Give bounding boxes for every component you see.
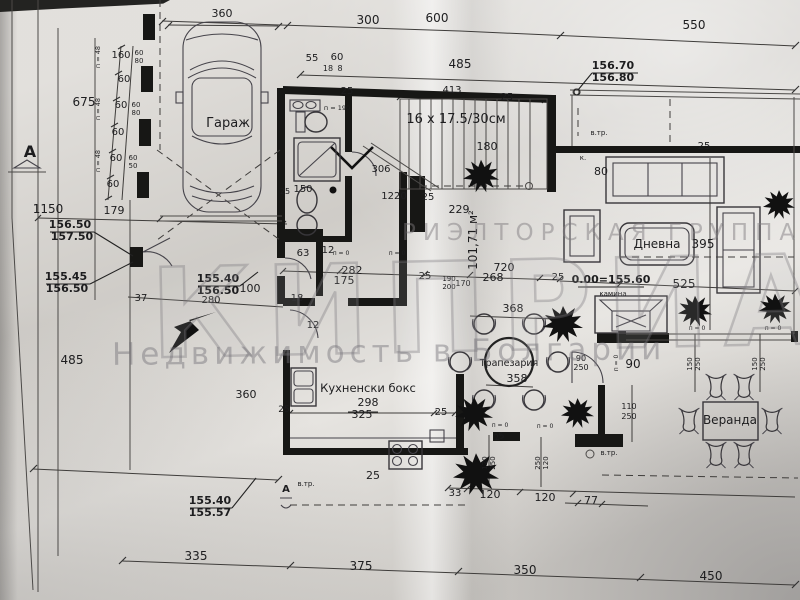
dim-label: 325 — [352, 408, 373, 421]
room-label-living: Дневна — [634, 237, 681, 251]
room-label-dining: Трапезария — [479, 358, 539, 369]
dim-label: 33 — [449, 488, 462, 499]
dim-label: в.тр. — [600, 449, 617, 457]
dim-label: п = 0 — [389, 250, 406, 257]
dim-label: 300 — [357, 13, 380, 27]
dim-label: 25 — [278, 405, 289, 415]
dim-label: 25 — [366, 469, 380, 482]
north-arrow — [169, 312, 216, 353]
dim-label: 25 — [501, 92, 514, 103]
dim-label: п = 0 — [537, 423, 554, 430]
car — [157, 22, 282, 240]
dim-label: 250 — [621, 412, 636, 421]
dim-label: 60 — [132, 101, 141, 109]
floor-plan-drawing: 3603006005504855560188160606060606060806… — [0, 0, 800, 600]
dim-label: 170 — [455, 279, 470, 288]
dim-label: 525 — [673, 277, 696, 291]
dim-label: 306 — [371, 164, 390, 175]
dim-label: 150 — [751, 357, 759, 370]
dim-label: 120 — [535, 491, 556, 504]
dim-label: 350 — [514, 563, 537, 577]
dim-label: 120 — [481, 456, 489, 469]
dim-label: 37 — [135, 293, 148, 304]
dim-label: 1220 — [381, 191, 406, 202]
room-label-kitchen: Кухненски бокс — [320, 381, 416, 395]
dim-label: 25 — [552, 272, 565, 283]
elevation-mark: 155.57 — [189, 506, 231, 519]
dim-label: 18 — [323, 64, 333, 73]
plants — [453, 160, 795, 495]
dim-label: 150 — [686, 357, 694, 370]
dim-label: 25 — [280, 187, 290, 196]
dim-label: 600 — [426, 11, 449, 25]
toilet-tank — [296, 112, 305, 132]
elevation-mark: 156.80 — [592, 71, 635, 84]
elevation-mark: 157.50 — [51, 230, 94, 243]
dim-label: 77 — [584, 494, 598, 507]
dim-label: 60 — [115, 100, 128, 111]
dim-label: 80 — [594, 165, 608, 178]
dim-label: 120 — [480, 488, 501, 501]
dim-label: 360 — [212, 7, 233, 20]
dim-label: 60 — [107, 179, 120, 190]
floor-area-label: 101,71 м² — [466, 210, 480, 270]
level-note: 0.00=155.60 — [572, 273, 651, 286]
dim-label: 90 — [625, 357, 640, 371]
dim-label: п = 0 — [613, 355, 620, 372]
dim-label: 413 — [442, 85, 461, 96]
dim-label: 1150 — [33, 202, 64, 216]
dim-label: 179 — [104, 204, 125, 217]
floor-plan-photo: 3603006005504855560188160606060606060806… — [0, 0, 800, 600]
dim-label: п = 0 — [492, 422, 509, 429]
fireplace-label: камина — [599, 290, 626, 298]
dim-label: п = 190 — [324, 104, 350, 112]
dim-label: 55 — [306, 53, 319, 64]
dim-label: 25 — [341, 86, 354, 97]
dim-label: в.тр. — [297, 480, 314, 488]
dim-label: 395 — [692, 237, 715, 251]
dim-label: 368 — [503, 302, 524, 315]
bathroom-fixtures — [290, 100, 340, 235]
dim-label: 190 — [442, 275, 455, 283]
dim-label: 90 — [576, 354, 586, 363]
dim-label: 60 — [331, 52, 344, 63]
dim-label: 63 — [297, 248, 310, 259]
dim-label: 80 — [135, 57, 144, 65]
dim-label: 50 — [129, 162, 138, 170]
dim-label: 550 — [683, 18, 706, 32]
dim-label: 180 — [477, 140, 498, 153]
dim-label: 18 — [291, 293, 304, 304]
dim-label: п = 48 — [94, 150, 102, 172]
dim-label: п = 0 — [333, 250, 350, 257]
dim-label: 268 — [483, 271, 504, 284]
section-mark-a-label: А — [24, 142, 37, 161]
dim-label: 250 — [573, 363, 588, 372]
armchair — [564, 210, 600, 262]
dim-label: 60 — [129, 154, 138, 162]
dim-label: 250 — [694, 357, 702, 370]
fireplace — [595, 296, 667, 333]
dim-label: 60 — [118, 74, 131, 85]
stairs-note: 16 х 17.5/30см — [406, 112, 505, 127]
dim-label: 358 — [507, 372, 528, 385]
dim-label: 120 — [542, 456, 550, 469]
room-label-veranda: Веранда — [703, 413, 757, 427]
dim-label: 675 — [73, 95, 96, 109]
dim-label: 200 — [442, 283, 455, 291]
dim-label: 60 — [135, 49, 144, 57]
dim-label: 485 — [61, 353, 84, 367]
dim-label: 150 — [293, 184, 312, 195]
room-label-garage: Гараж — [206, 116, 250, 131]
elevation-mark: 156.50 — [46, 282, 89, 295]
dim-label: 25 — [422, 192, 435, 203]
dim-label: 250 — [759, 357, 767, 370]
dim-label: 25 — [698, 141, 711, 152]
dim-label: п = 0 — [689, 325, 706, 332]
dim-label: 25 — [435, 407, 448, 418]
dim-label: 335 — [185, 549, 208, 563]
section-mark-a-label: А — [282, 484, 290, 495]
dim-label: в.тр. — [590, 129, 607, 137]
dim-label: 250 — [489, 456, 497, 469]
dim-label: п = 0 — [765, 325, 782, 332]
dim-label: 175 — [334, 274, 355, 287]
dim-label: 485 — [449, 57, 472, 71]
kitchen-sink — [291, 368, 316, 406]
elevation-mark: 156.50 — [197, 284, 240, 297]
dim-label: 80 — [132, 109, 141, 117]
dim-label: 110 — [621, 402, 636, 411]
dim-label: 8 — [337, 64, 342, 73]
dim-label: 450 — [700, 569, 723, 583]
dim-label: п = 48 — [94, 46, 102, 68]
toilet — [305, 112, 327, 132]
dim-label: 360 — [236, 388, 257, 401]
dim-label: 250 — [534, 456, 542, 469]
dim-label: к. — [580, 154, 586, 162]
dim-label: 60 — [112, 127, 125, 138]
dim-label: 60 — [110, 153, 123, 164]
dim-label: 12 — [307, 320, 320, 331]
dim-label: 25 — [419, 271, 432, 282]
dim-label: 160 — [111, 50, 130, 61]
dim-label: 100 — [240, 282, 261, 295]
dim-label: 375 — [350, 559, 373, 573]
